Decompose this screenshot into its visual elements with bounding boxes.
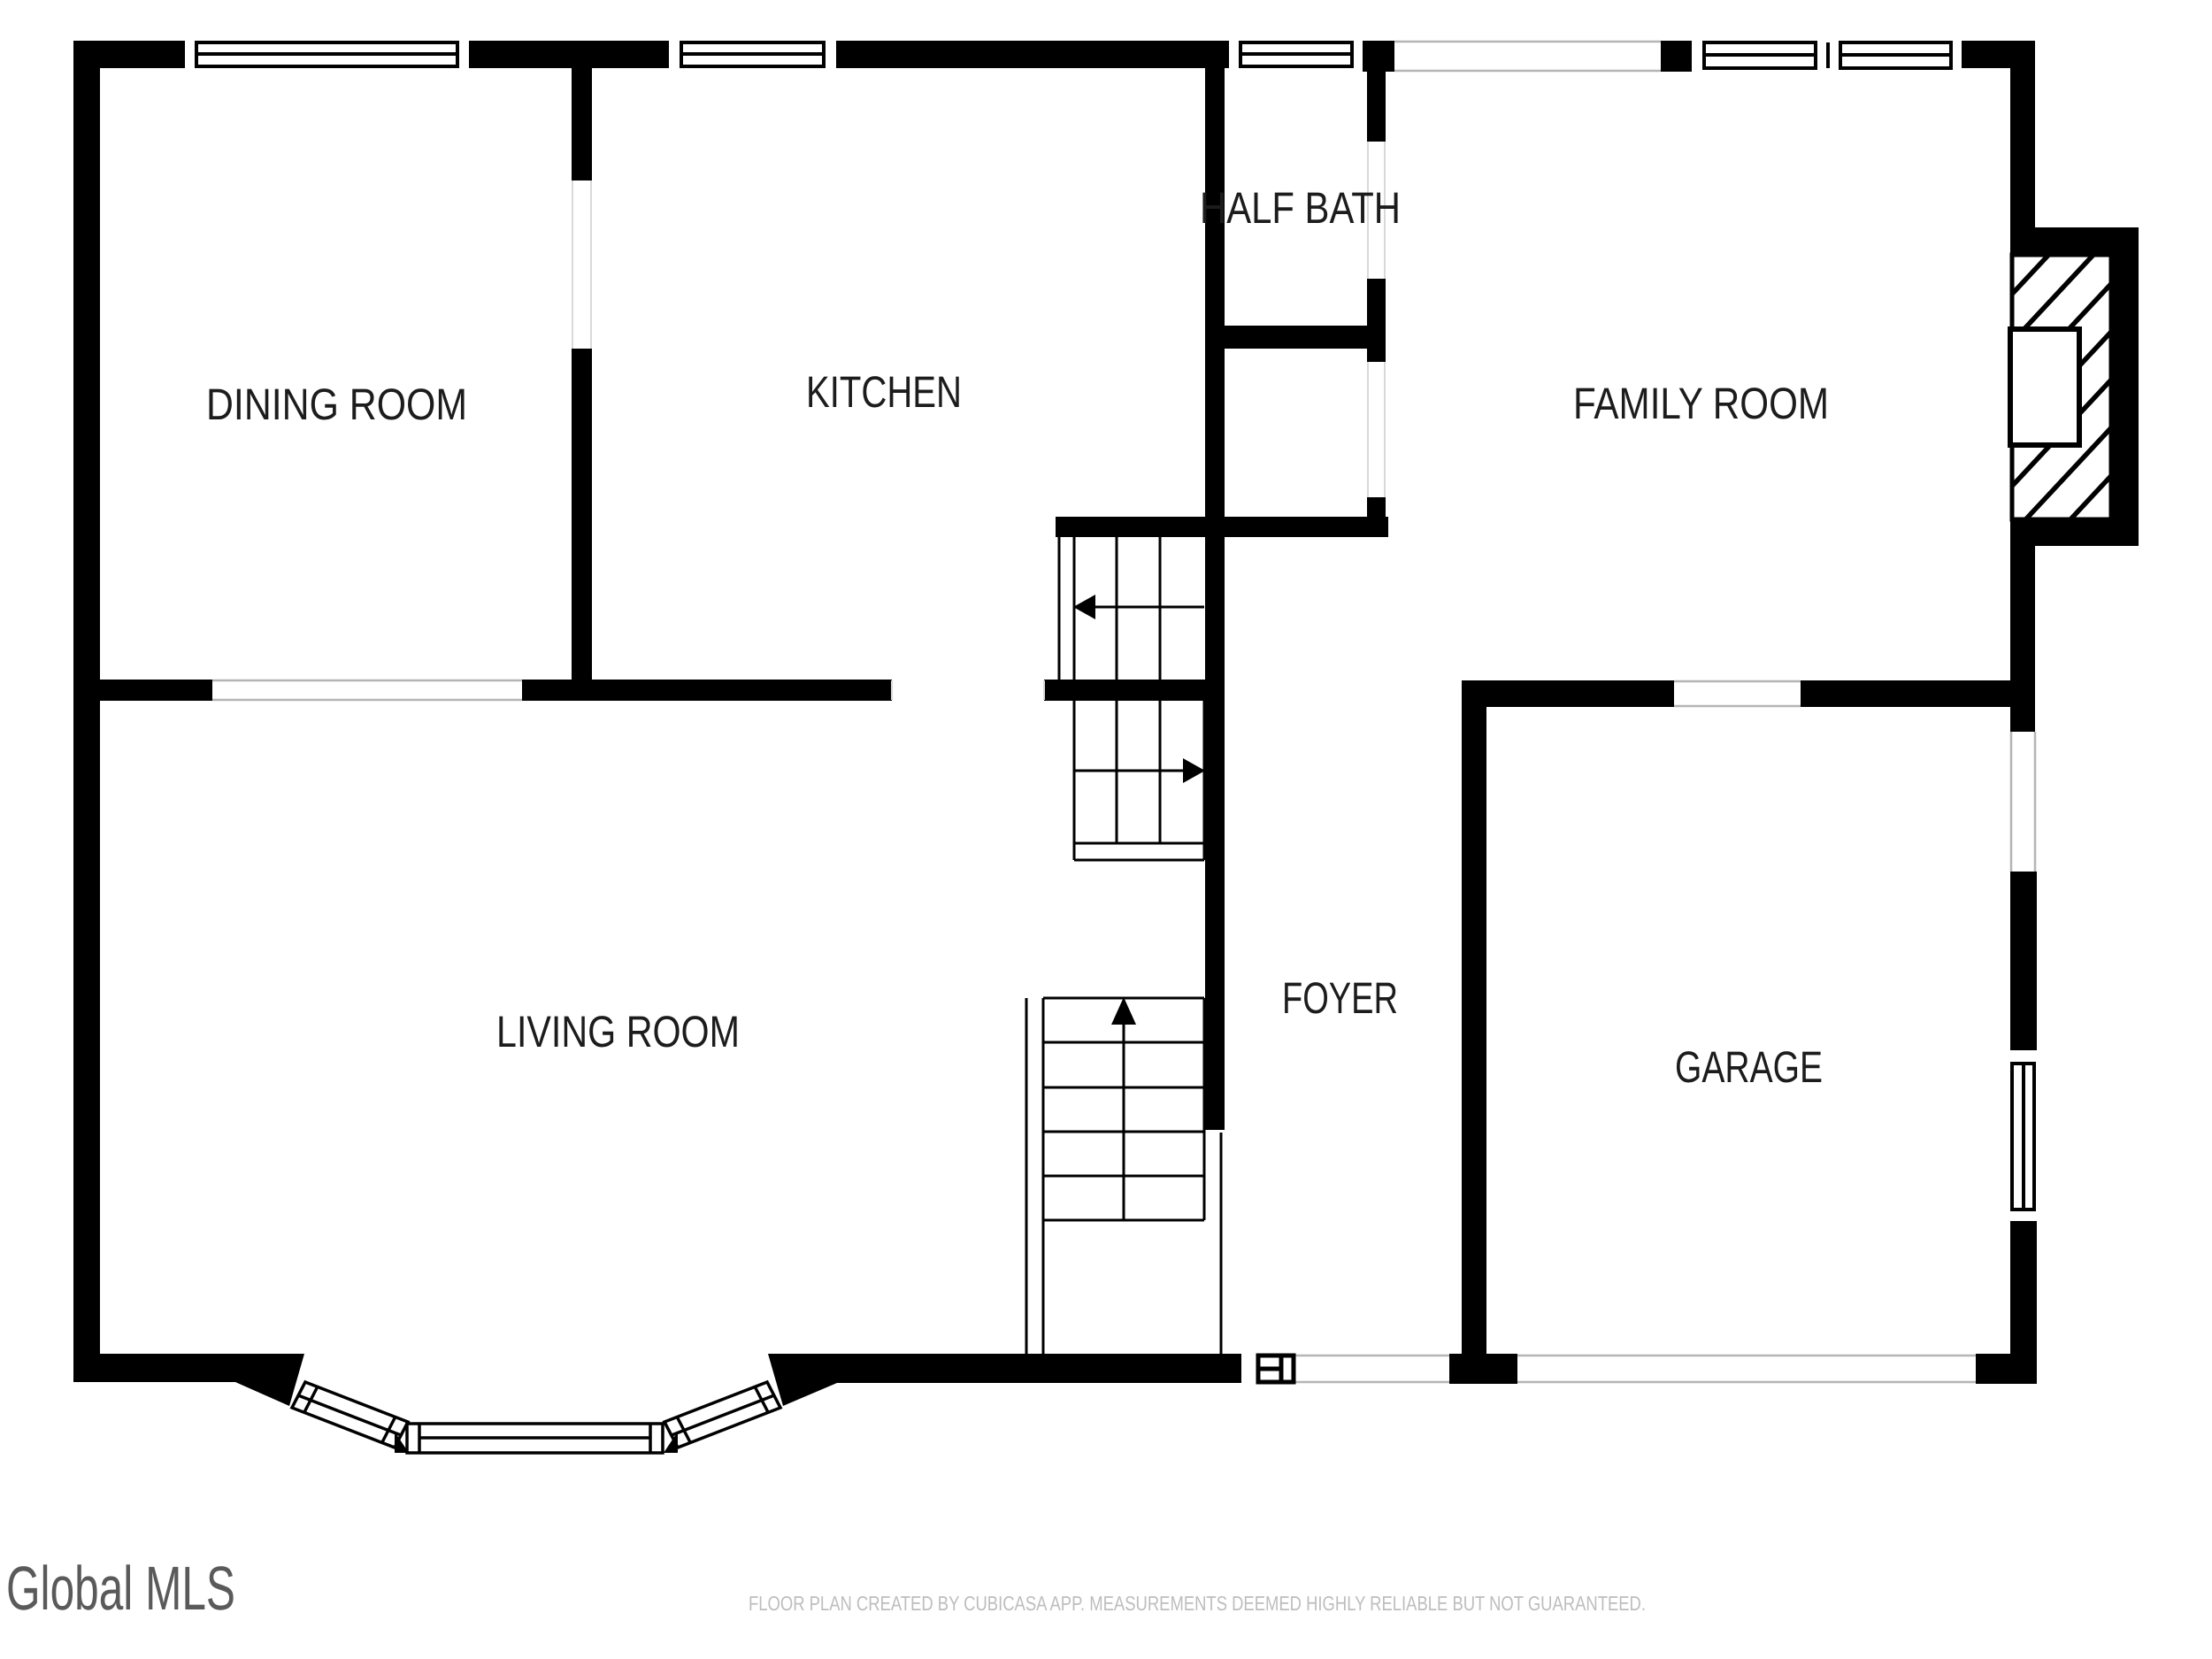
svg-text:FLOOR PLAN CREATED BY CUBICASA: FLOOR PLAN CREATED BY CUBICASA APP. MEAS… [749, 1592, 1646, 1615]
svg-text:LIVING ROOM: LIVING ROOM [496, 1007, 740, 1056]
svg-text:GARAGE: GARAGE [1675, 1042, 1823, 1092]
svg-text:FOYER: FOYER [1282, 973, 1398, 1023]
svg-text:Global MLS: Global MLS [6, 1554, 235, 1623]
svg-text:KITCHEN: KITCHEN [806, 367, 962, 417]
svg-text:HALF BATH: HALF BATH [1200, 183, 1401, 233]
svg-text:FAMILY ROOM: FAMILY ROOM [1573, 379, 1829, 428]
svg-text:DINING ROOM: DINING ROOM [206, 380, 467, 429]
